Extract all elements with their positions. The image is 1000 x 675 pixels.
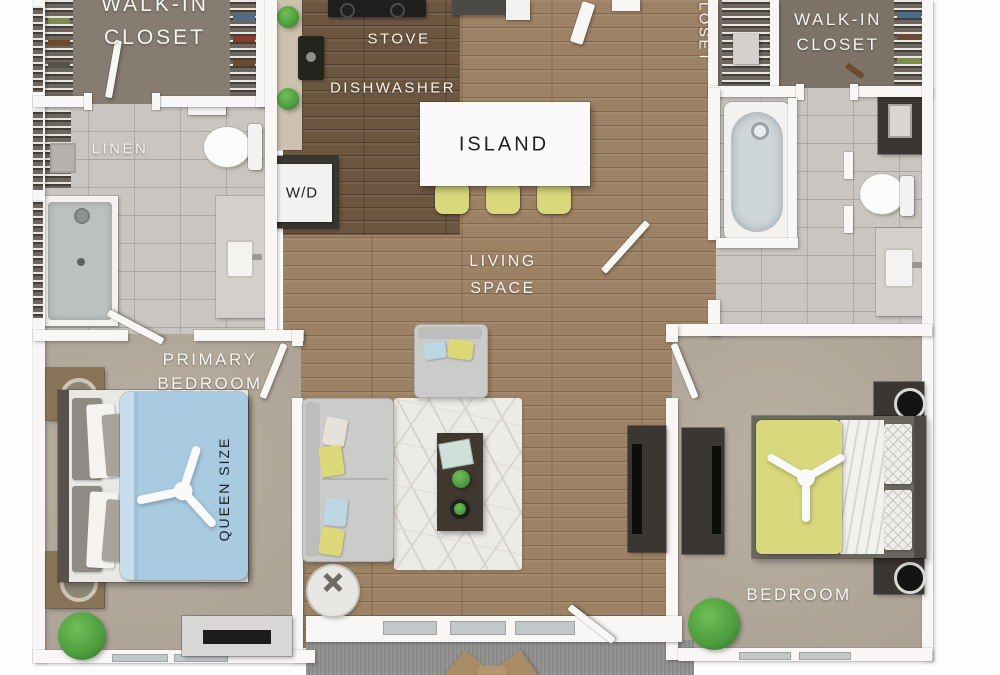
window — [739, 652, 791, 660]
door-jamb — [84, 93, 92, 110]
tub-drain-icon — [751, 122, 769, 140]
wall — [770, 0, 779, 92]
tv-screen — [632, 444, 642, 534]
wall — [292, 330, 303, 346]
wall — [788, 98, 797, 240]
hall-closet-box — [733, 34, 759, 64]
window-strip — [33, 110, 43, 190]
floor-plan: WALK-IN CLOSET LINEN STOVE DISHWASHER IS… — [0, 0, 1000, 675]
closet-rail-left — [45, 0, 73, 102]
toilet-tank — [900, 176, 914, 216]
primary-bedroom-label-line1: PRIMARY — [163, 350, 258, 370]
wall — [666, 324, 932, 336]
hanging-clothes — [48, 62, 70, 68]
bowl-plant — [454, 503, 466, 515]
herb-plant — [277, 88, 299, 110]
window — [112, 654, 168, 662]
window-strip — [33, 200, 43, 318]
wall — [158, 96, 267, 107]
sink — [226, 240, 254, 278]
floor-plant — [688, 598, 740, 650]
kitchen-counter-top — [452, 0, 514, 15]
throw-pillow — [318, 445, 345, 478]
island-label: ISLAND — [459, 134, 549, 157]
walkin-closet-left-label-line2: CLOSET — [104, 26, 206, 50]
wall — [33, 96, 88, 107]
armchair-back — [418, 327, 482, 339]
toilet-partition — [844, 152, 853, 179]
hanging-clothes — [897, 12, 921, 18]
faucet-icon — [252, 254, 262, 260]
hanging-clothes — [48, 18, 70, 24]
door-jamb — [152, 93, 160, 110]
window — [383, 621, 437, 635]
throw-pillow — [423, 341, 447, 361]
dishwasher-label: DISHWASHER — [330, 80, 456, 97]
door-jamb — [612, 0, 640, 11]
tv-screen — [203, 630, 271, 644]
throw-pillow — [323, 497, 349, 527]
wall — [708, 86, 798, 97]
wall — [194, 330, 304, 341]
shower-drain — [77, 258, 85, 266]
floor-plant — [58, 612, 106, 660]
primary-bedroom-label-line2: BEDROOM — [157, 374, 262, 394]
shoe-row — [233, 60, 255, 66]
shoe-row — [233, 36, 255, 42]
speaker-icon — [894, 562, 926, 594]
sofa-back — [305, 402, 320, 556]
faucet-icon — [912, 262, 922, 268]
burner-icon — [390, 3, 405, 18]
living-space-label-line2: SPACE — [470, 280, 536, 298]
door-jamb — [796, 84, 804, 100]
coffee-table-book — [439, 440, 473, 469]
storage-basket — [888, 104, 912, 138]
hanging-clothes — [897, 58, 921, 64]
side-table — [308, 566, 358, 616]
hanging-clothes — [48, 40, 70, 46]
stool — [537, 182, 571, 214]
toilet — [204, 127, 250, 167]
wall — [708, 88, 720, 240]
herb-plant — [277, 6, 299, 28]
stool — [486, 182, 520, 214]
sink — [884, 248, 914, 288]
patio-table — [478, 666, 506, 675]
window — [799, 652, 851, 660]
bedroom-label: BEDROOM — [746, 585, 851, 605]
wall — [716, 238, 798, 248]
shoe-row — [233, 14, 255, 20]
door-jamb — [850, 84, 858, 100]
bath-mat — [50, 143, 76, 173]
throw-pillow — [447, 339, 474, 361]
stove-label: STOVE — [367, 31, 430, 48]
appliance-handle — [306, 52, 316, 62]
wall — [33, 330, 128, 341]
shower-head — [76, 210, 88, 222]
headboard — [58, 390, 69, 582]
wall — [265, 0, 277, 336]
window — [450, 621, 506, 635]
hanging-clothes — [897, 34, 921, 40]
bed-pillow — [884, 424, 912, 484]
burner-icon — [340, 3, 355, 18]
living-space-label-line1: LIVING — [469, 253, 536, 271]
walkin-closet-right-label-line2: CLOSET — [796, 35, 879, 55]
walkin-closet-left-label-line1: WALK-IN — [101, 0, 209, 17]
wall — [666, 324, 678, 342]
tv-screen — [712, 446, 721, 534]
throw-pillow — [318, 526, 345, 556]
washer-dryer-label: W/D — [286, 185, 318, 202]
toilet — [860, 174, 904, 214]
kitchen-sink — [506, 0, 530, 20]
walkin-closet-right-label-line1: WALK-IN — [794, 10, 882, 30]
table-plant — [452, 470, 470, 488]
headboard — [914, 416, 926, 558]
toilet-partition — [844, 206, 853, 233]
ceiling-fan-icon — [762, 434, 850, 522]
linen-label: LINEN — [92, 141, 149, 158]
wall — [856, 86, 932, 97]
sofa-cushion-line — [322, 478, 388, 480]
window-strip — [33, 6, 43, 92]
window — [515, 621, 575, 635]
queen-size-label: QUEEN SIZE — [216, 437, 232, 542]
stool — [435, 182, 469, 214]
toilet-tank — [248, 124, 262, 170]
hall-closet-label: CLOSET — [696, 0, 713, 64]
bed-pillow — [884, 490, 912, 550]
